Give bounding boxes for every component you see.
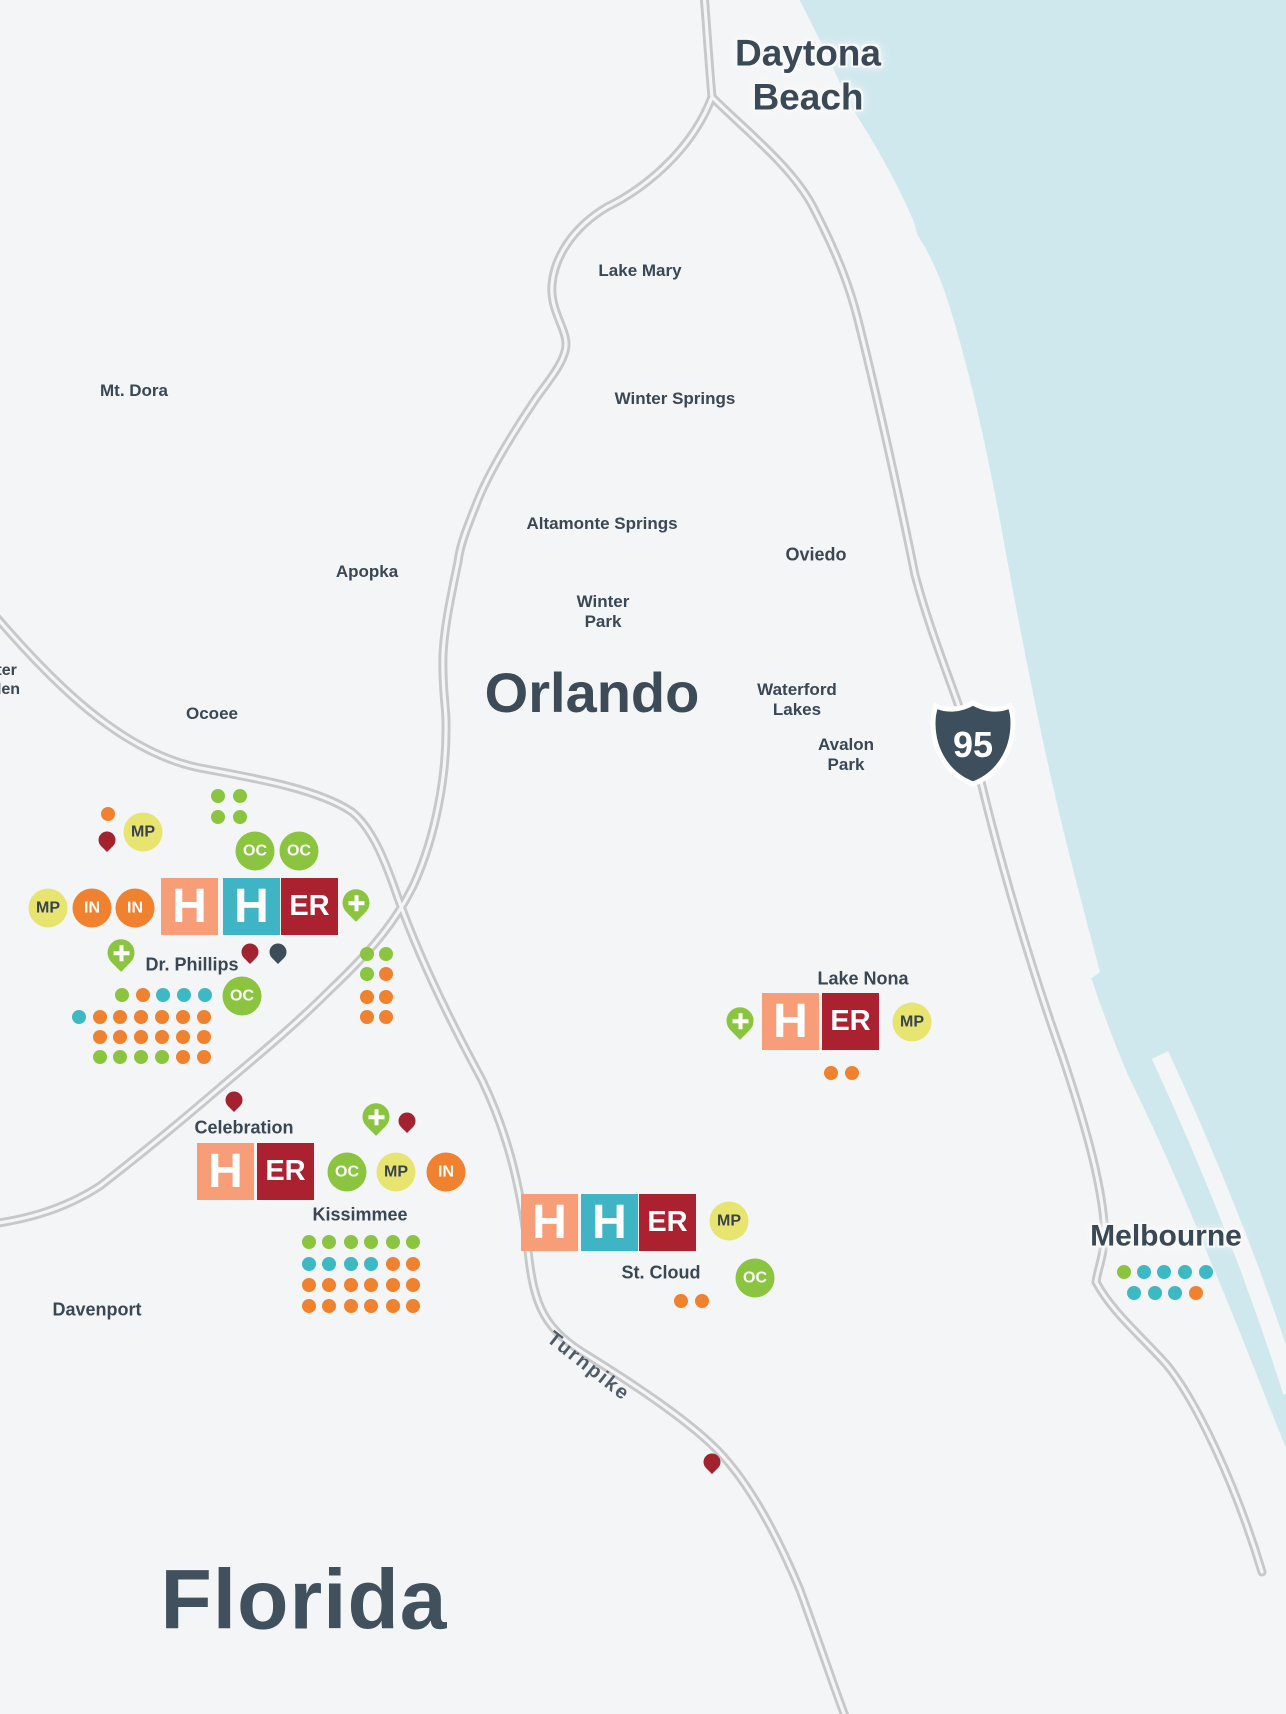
dot-marker (155, 1010, 169, 1024)
dot-marker (322, 1235, 336, 1249)
dot-marker (136, 988, 150, 1002)
red-location-pin[interactable] (222, 1088, 246, 1112)
dot-marker (386, 1235, 400, 1249)
dot-marker (824, 1066, 838, 1080)
er-block-marker[interactable]: ER (281, 878, 338, 935)
dot-marker (406, 1257, 420, 1271)
dot-marker (176, 1010, 190, 1024)
dot-marker (1189, 1286, 1203, 1300)
dot-marker (1178, 1265, 1192, 1279)
dot-marker (197, 1050, 211, 1064)
dot-marker (93, 1050, 107, 1064)
dot-marker (322, 1299, 336, 1313)
in-badge-marker[interactable]: IN (73, 889, 112, 928)
dot-marker (113, 1050, 127, 1064)
dot-marker (156, 988, 170, 1002)
dot-marker (176, 1050, 190, 1064)
dot-marker (379, 990, 393, 1004)
block-letter: H (172, 879, 207, 934)
dot-marker (379, 967, 393, 981)
dot-marker (113, 1030, 127, 1044)
dot-marker (134, 1030, 148, 1044)
block-letter: ER (289, 890, 329, 923)
block-letter: ER (647, 1206, 687, 1239)
hospital-block-marker[interactable]: H (223, 878, 280, 935)
dot-marker (93, 1010, 107, 1024)
dot-marker (379, 1010, 393, 1024)
dot-marker (1117, 1265, 1131, 1279)
oc-badge-marker[interactable]: OC (280, 832, 319, 871)
oc-badge-marker[interactable]: OC (236, 832, 275, 871)
dot-marker (72, 1010, 86, 1024)
dot-marker (113, 1010, 127, 1024)
hospital-block-marker[interactable]: H (197, 1143, 254, 1200)
dot-marker (379, 947, 393, 961)
dot-marker (1148, 1286, 1162, 1300)
dot-marker (406, 1299, 420, 1313)
oc-badge-marker[interactable]: OC (223, 977, 262, 1016)
map-canvas: HHERHERHHERHEROCOCOCOCOCMPMPMPMPMPINININ… (0, 0, 1286, 1714)
dot-marker (197, 1030, 211, 1044)
dot-marker (360, 947, 374, 961)
red-location-pin[interactable] (95, 828, 119, 852)
oc-badge-marker[interactable]: OC (328, 1153, 367, 1192)
dot-marker (364, 1278, 378, 1292)
er-block-marker[interactable]: ER (822, 993, 879, 1050)
plus-icon (727, 1007, 754, 1034)
dot-marker (93, 1030, 107, 1044)
clinic-plus-pin[interactable] (337, 884, 375, 922)
dark-location-pin[interactable] (266, 940, 290, 964)
dot-marker (302, 1278, 316, 1292)
clinic-plus-pin[interactable] (102, 934, 140, 972)
dot-marker (101, 807, 115, 821)
dot-marker (1127, 1286, 1141, 1300)
block-letter: ER (830, 1005, 870, 1038)
dot-marker (360, 1010, 374, 1024)
block-letter: H (532, 1195, 567, 1250)
mp-badge-marker[interactable]: MP (710, 1202, 749, 1241)
mp-badge-marker[interactable]: MP (29, 889, 68, 928)
shield-number: 95 (953, 724, 993, 765)
dot-marker (233, 810, 247, 824)
dot-marker (197, 1010, 211, 1024)
dot-marker (322, 1257, 336, 1271)
dot-marker (364, 1257, 378, 1271)
dot-marker (364, 1299, 378, 1313)
red-location-pin[interactable] (238, 940, 262, 964)
dot-marker (134, 1050, 148, 1064)
dot-marker (360, 990, 374, 1004)
dot-marker (115, 988, 129, 1002)
block-letter: ER (265, 1155, 305, 1188)
dot-marker (1168, 1286, 1182, 1300)
in-badge-marker[interactable]: IN (427, 1153, 466, 1192)
dot-marker (406, 1278, 420, 1292)
plus-icon (343, 889, 370, 916)
clinic-plus-pin[interactable] (721, 1002, 759, 1040)
dot-marker (344, 1257, 358, 1271)
hospital-block-marker[interactable]: H (762, 993, 819, 1050)
dot-marker (406, 1235, 420, 1249)
dot-marker (360, 967, 374, 981)
dot-marker (211, 810, 225, 824)
facility-markers: HHERHERHHERHEROCOCOCOCOCMPMPMPMPMPINININ (0, 0, 1286, 1714)
dot-marker (134, 1010, 148, 1024)
dot-marker (1199, 1265, 1213, 1279)
plus-icon (108, 939, 135, 966)
er-block-marker[interactable]: ER (257, 1143, 314, 1200)
dot-marker (211, 789, 225, 803)
dot-marker (302, 1235, 316, 1249)
dot-marker (1157, 1265, 1171, 1279)
interstate-95-shield: 95 (930, 697, 1016, 787)
dot-marker (155, 1050, 169, 1064)
dot-marker (177, 988, 191, 1002)
dot-marker (364, 1235, 378, 1249)
dot-marker (674, 1294, 688, 1308)
er-block-marker[interactable]: ER (639, 1194, 696, 1251)
dot-marker (344, 1299, 358, 1313)
block-letter: H (773, 994, 808, 1049)
dot-marker (386, 1257, 400, 1271)
clinic-plus-pin[interactable] (357, 1098, 395, 1136)
dot-marker (176, 1030, 190, 1044)
red-location-pin[interactable] (700, 1450, 724, 1474)
mp-badge-marker[interactable]: MP (893, 1003, 932, 1042)
dot-marker (1137, 1265, 1151, 1279)
dot-marker (302, 1299, 316, 1313)
block-letter: H (234, 879, 269, 934)
dot-marker (155, 1030, 169, 1044)
red-location-pin[interactable] (395, 1109, 419, 1133)
dot-marker (344, 1278, 358, 1292)
in-badge-marker[interactable]: IN (116, 889, 155, 928)
hospital-block-marker[interactable]: H (161, 878, 218, 935)
dot-marker (386, 1278, 400, 1292)
oc-badge-marker[interactable]: OC (736, 1259, 775, 1298)
plus-icon (363, 1103, 390, 1130)
dot-marker (386, 1299, 400, 1313)
dot-marker (695, 1294, 709, 1308)
dot-marker (198, 988, 212, 1002)
dot-marker (302, 1257, 316, 1271)
block-letter: H (592, 1195, 627, 1250)
mp-badge-marker[interactable]: MP (377, 1153, 416, 1192)
dot-marker (344, 1235, 358, 1249)
block-letter: H (208, 1144, 243, 1199)
mp-badge-marker[interactable]: MP (124, 813, 163, 852)
hospital-block-marker[interactable]: H (581, 1194, 638, 1251)
dot-marker (845, 1066, 859, 1080)
dot-marker (233, 789, 247, 803)
dot-marker (322, 1278, 336, 1292)
hospital-block-marker[interactable]: H (521, 1194, 578, 1251)
